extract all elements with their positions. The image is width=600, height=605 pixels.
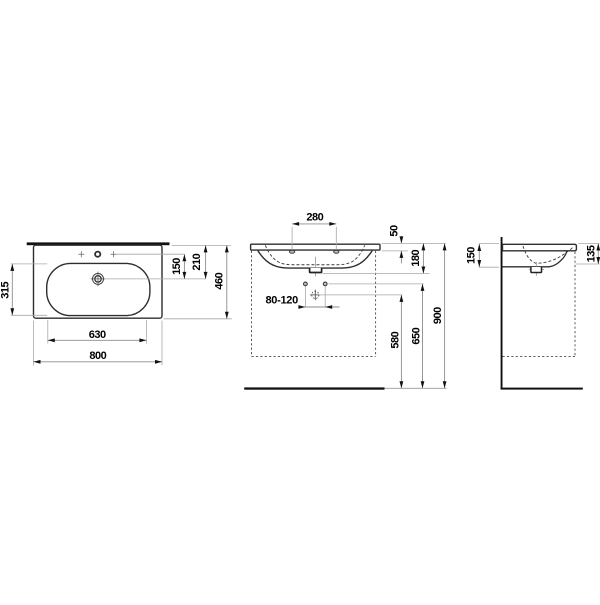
svg-text:135: 135 — [586, 245, 598, 262]
svg-text:580: 580 — [390, 331, 402, 348]
svg-text:900: 900 — [432, 307, 444, 324]
svg-text:150: 150 — [171, 258, 183, 275]
svg-text:80-120: 80-120 — [265, 294, 298, 306]
svg-text:180: 180 — [410, 249, 422, 266]
svg-text:210: 210 — [191, 253, 203, 270]
svg-text:315: 315 — [0, 281, 12, 298]
svg-text:800: 800 — [89, 350, 106, 362]
svg-text:280: 280 — [306, 212, 323, 224]
svg-text:150: 150 — [465, 247, 477, 264]
svg-text:50: 50 — [388, 225, 400, 237]
svg-text:630: 630 — [89, 329, 106, 341]
svg-text:650: 650 — [410, 327, 422, 344]
svg-text:460: 460 — [214, 272, 226, 289]
